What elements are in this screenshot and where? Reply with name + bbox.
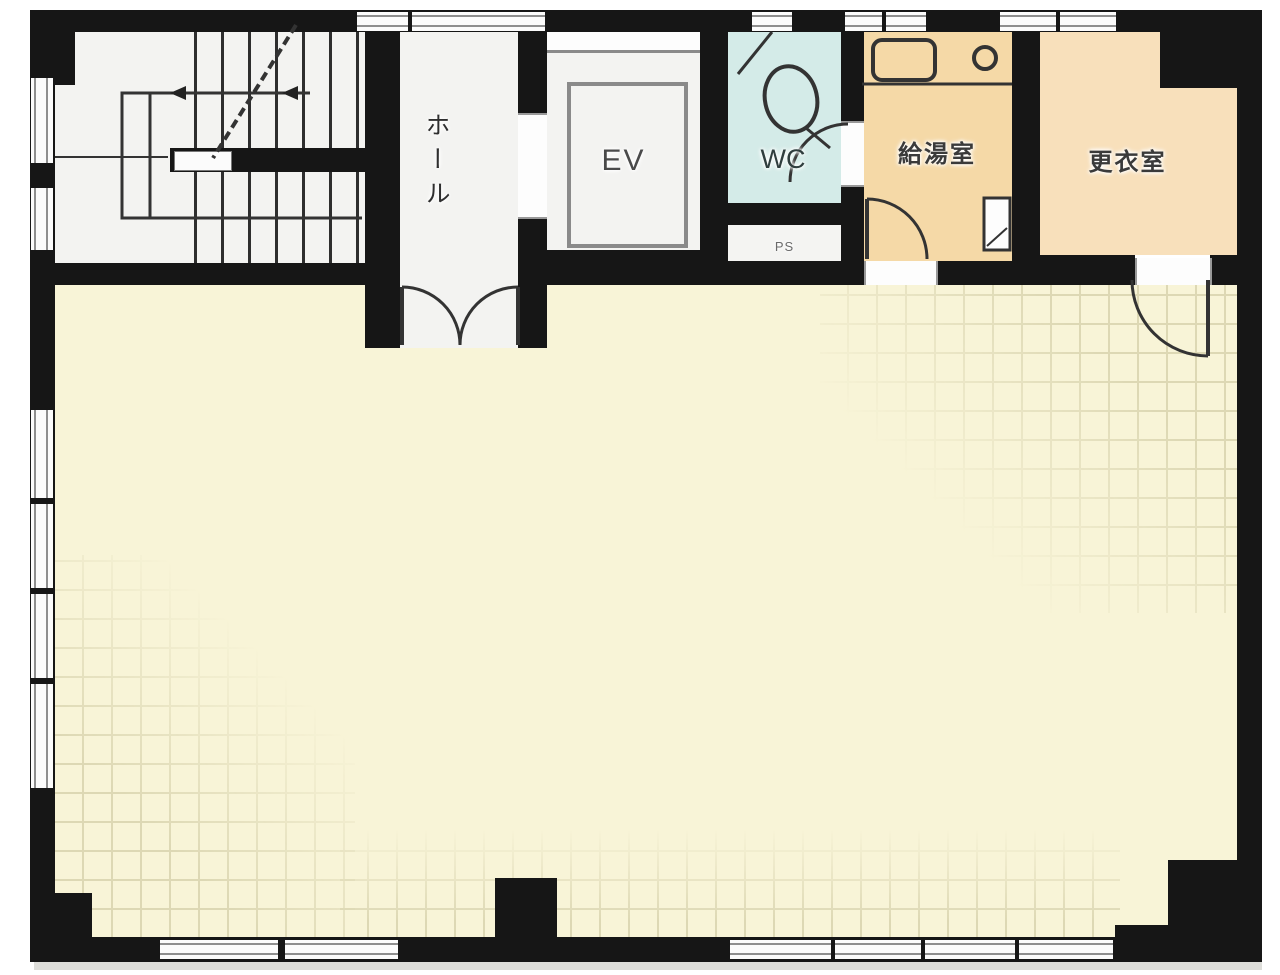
door-swing-hall-left — [402, 287, 460, 345]
door-swing-hall-right — [460, 287, 518, 345]
door-swing-changing — [1132, 280, 1208, 356]
stair-arrow-icon — [282, 86, 298, 100]
door-swing-kitchenette — [867, 199, 927, 259]
changing-room-label: 更衣室 — [1040, 142, 1215, 177]
stair-arrow-icon — [170, 86, 186, 100]
pipe-space-label: PS — [728, 239, 841, 254]
faucet-icon — [974, 47, 996, 69]
wc-door-leaf — [738, 32, 772, 74]
wc-label: WC — [728, 144, 838, 175]
kitchenette-label: 給湯室 — [862, 134, 1012, 169]
floor-plan-canvas: ホール EV WC PS 給湯室 更衣室 — [0, 0, 1280, 975]
toilet-icon — [759, 61, 824, 136]
sink-icon — [873, 40, 935, 80]
hall-label: ホール — [420, 112, 454, 242]
elevator-label: EV — [567, 82, 680, 240]
water-heater-icon — [984, 198, 1010, 250]
